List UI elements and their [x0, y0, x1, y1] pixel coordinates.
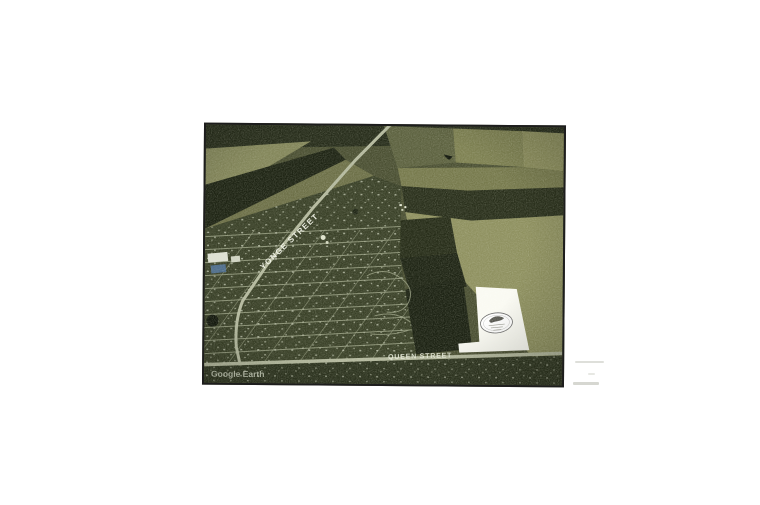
aerial-photo-canvas: YONGE STREET QUEEN STREET Google Earth: [204, 125, 564, 386]
scan-artifact-line: [575, 361, 604, 363]
aerial-photo: YONGE STREET QUEEN STREET Google Earth: [202, 123, 566, 388]
scan-artifact-line: [573, 382, 599, 385]
scanned-document-page: YONGE STREET QUEEN STREET Google Earth: [0, 0, 760, 505]
scan-grain-overlay: [204, 125, 564, 386]
scan-artifact-mark: [588, 373, 595, 375]
